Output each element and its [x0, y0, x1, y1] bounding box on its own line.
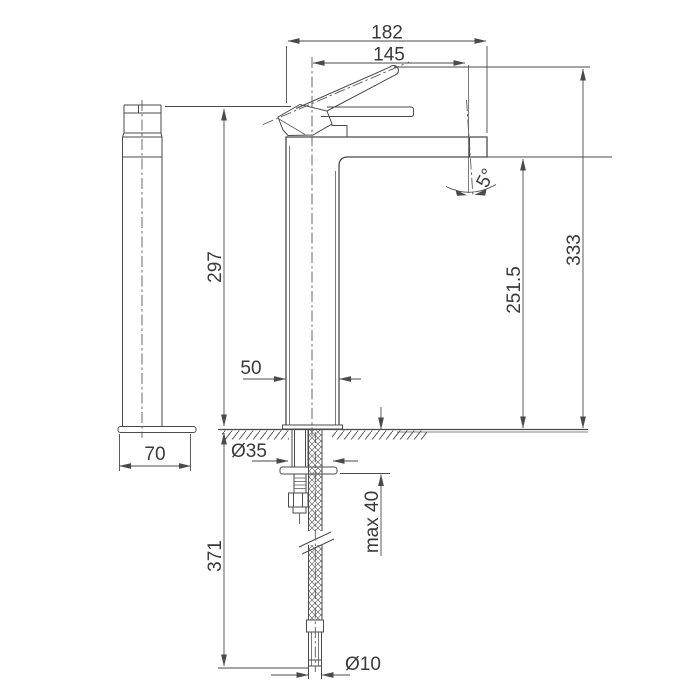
- faucet-body-outline: [286, 137, 487, 427]
- dimension-lines: [120, 41, 584, 675]
- spout-axis: [467, 100, 474, 197]
- dim-label-spout-projection: 145: [373, 45, 405, 66]
- braided-hose: [299, 430, 334, 620]
- dim-label-hole-diameter: Ø35: [231, 441, 267, 462]
- side-base-plate: [118, 427, 196, 433]
- dim-label-overall-width: 182: [371, 23, 403, 44]
- dim-label-spout-outlet-height: 251.5: [504, 266, 525, 314]
- mounting-nut: [289, 493, 309, 507]
- body-base-collar: [283, 425, 343, 429]
- dim-label-body-width: 50: [240, 358, 261, 379]
- dim-label-hose-tail-diameter: Ø10: [345, 654, 381, 675]
- dim-label-below-counter-length: 371: [205, 540, 226, 572]
- side-view: [118, 100, 196, 438]
- handle-lever: [296, 66, 398, 111]
- dim-label-spout-angle: 5°: [473, 165, 500, 191]
- faucet-technical-drawing: 182 145 297 371 333 251.5 max 40 50 70 Ø…: [0, 0, 700, 700]
- lever-centerline: [263, 62, 409, 125]
- threaded-shank: [292, 430, 308, 467]
- handle-grip: [321, 107, 414, 117]
- dim-label-base-width: 70: [144, 444, 165, 465]
- dimension-labels: 182 145 297 371 333 251.5 max 40 50 70 Ø…: [144, 23, 585, 676]
- deck-hatching: [222, 431, 427, 440]
- front-view: [165, 46, 612, 668]
- below-deck-assembly: [280, 430, 337, 679]
- dim-label-body-height: 297: [205, 251, 226, 283]
- drawing-canvas: 182 145 297 371 333 251.5 max 40 50 70 Ø…: [0, 0, 700, 700]
- dim-label-overall-height: 333: [564, 234, 585, 266]
- handle-pivot: [278, 105, 332, 136]
- dim-label-max-counter-thickness: max 40: [362, 491, 383, 553]
